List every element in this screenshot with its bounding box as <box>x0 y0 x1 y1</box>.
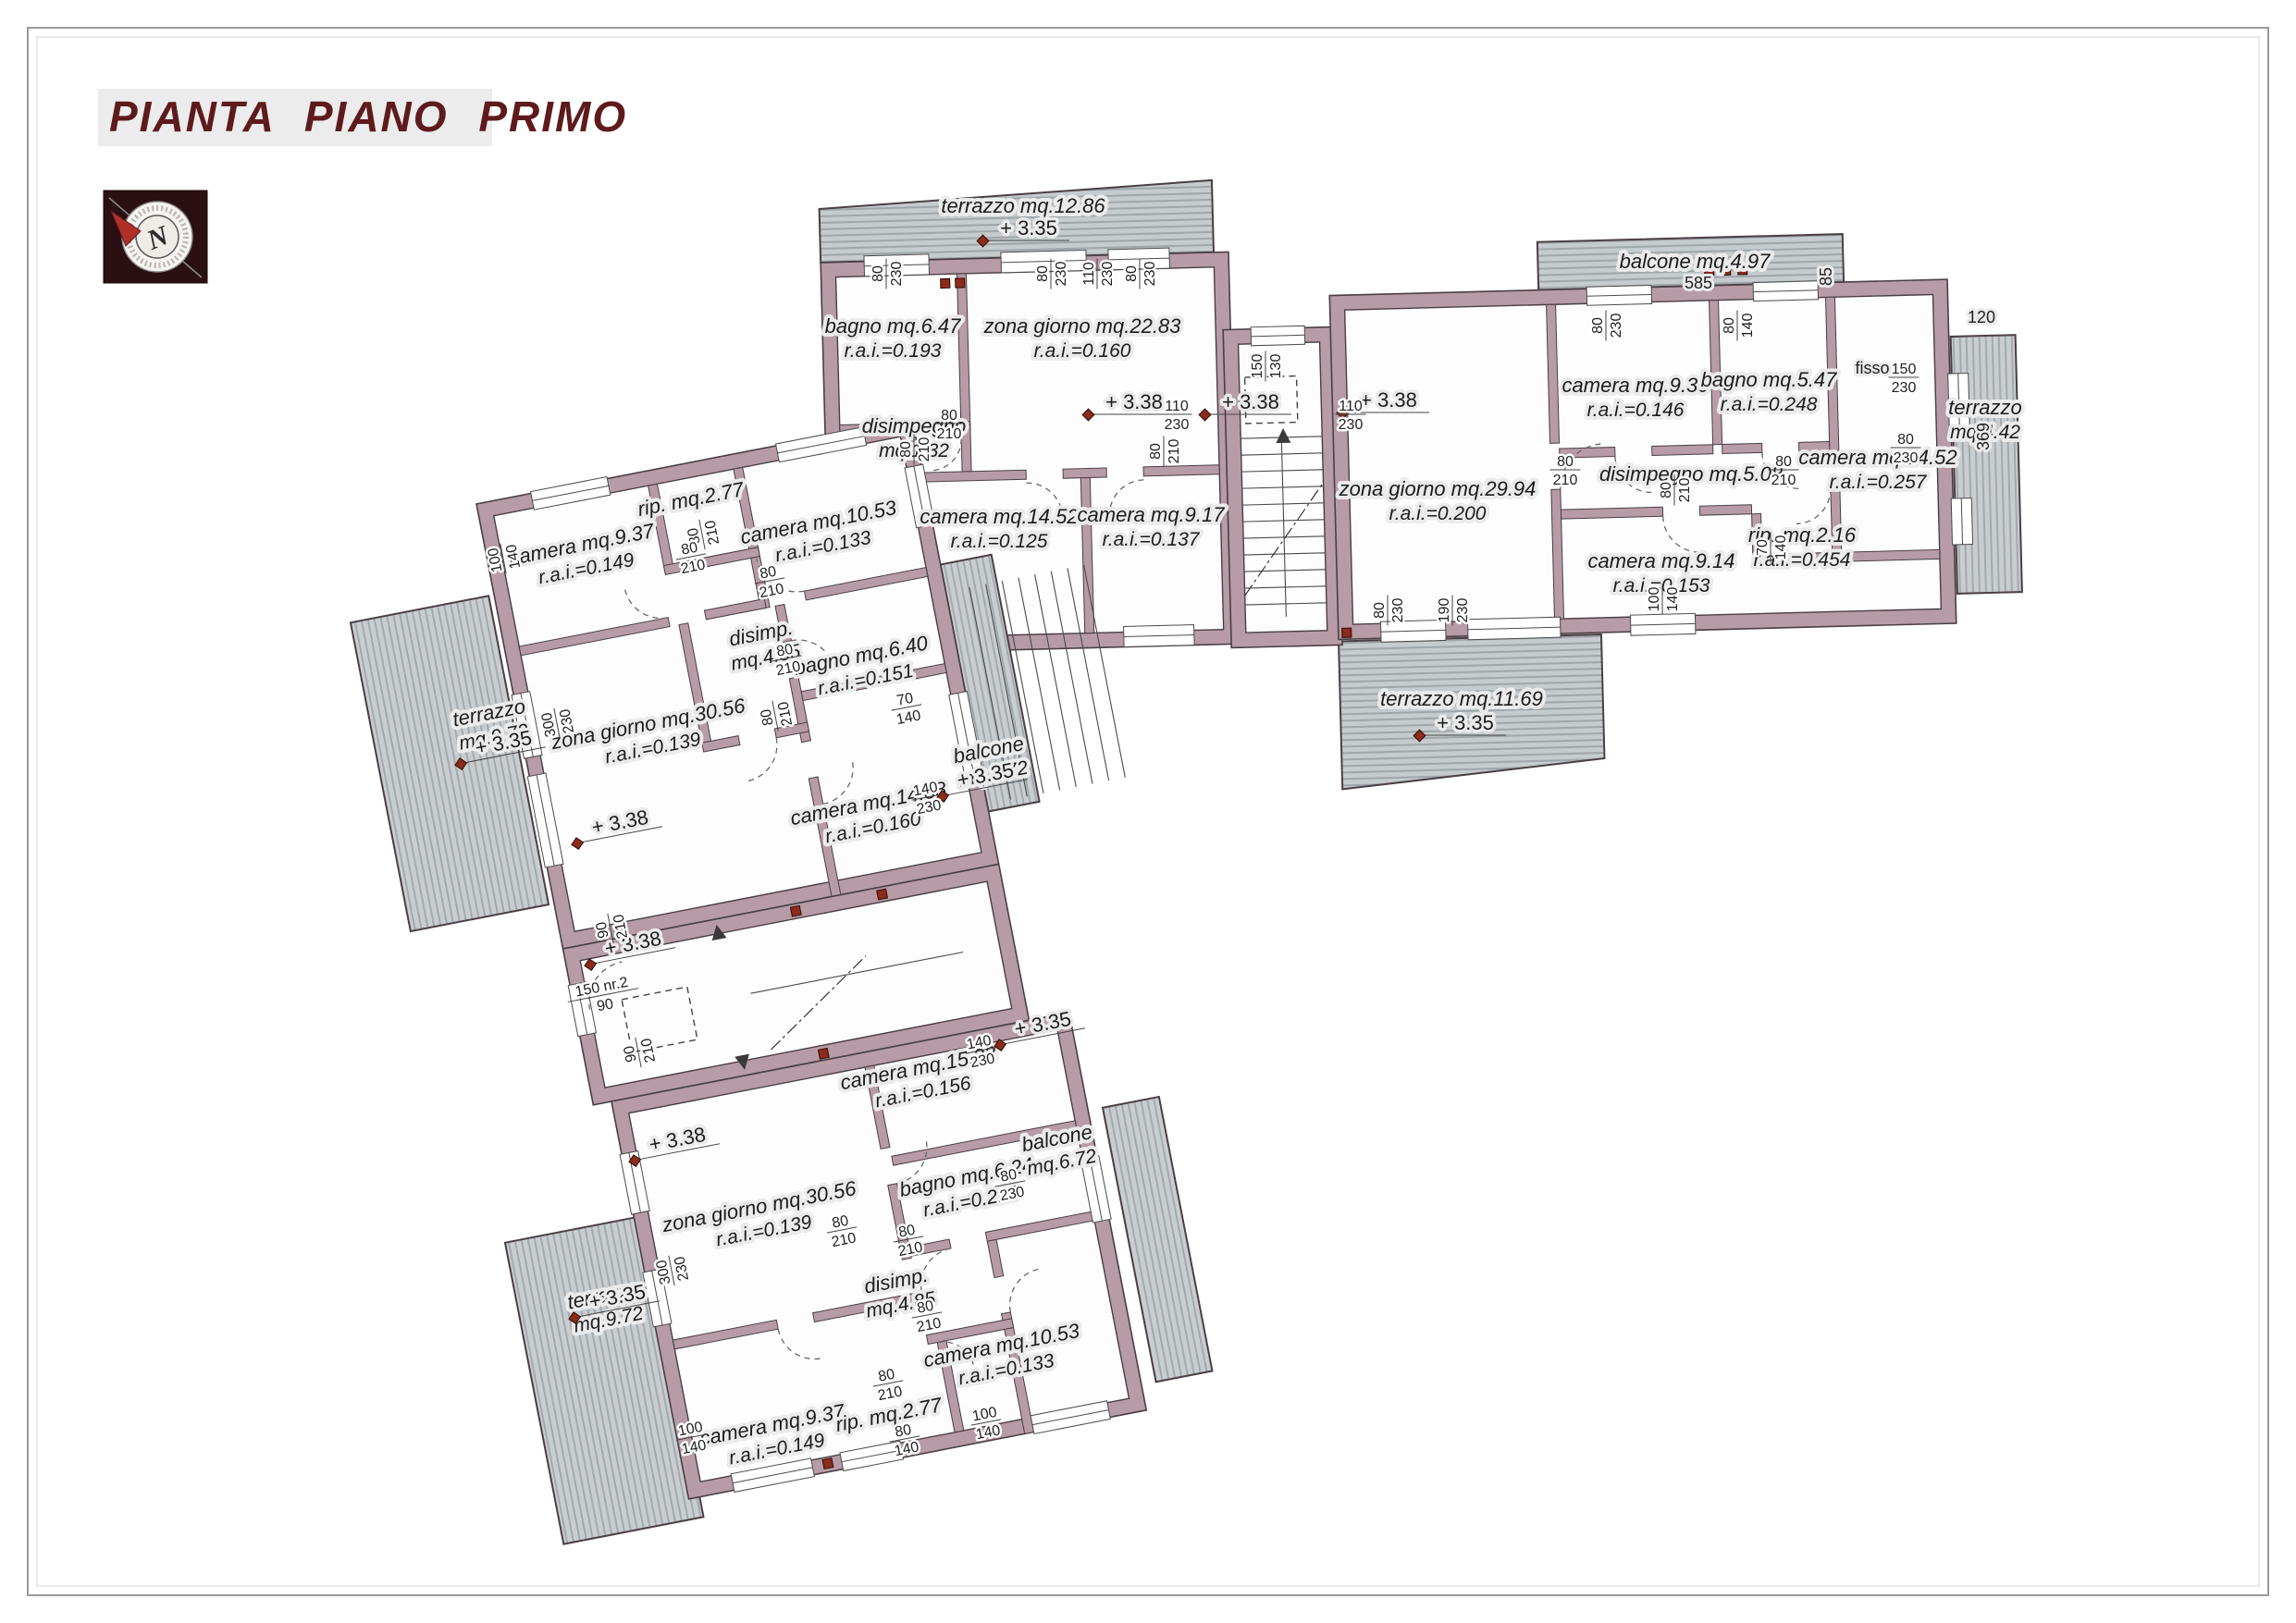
svg-text:585: 585 <box>1685 274 1712 292</box>
svg-text:terrazzo: terrazzo <box>1948 396 2021 419</box>
svg-text:80: 80 <box>1775 454 1792 470</box>
svg-text:70: 70 <box>1755 539 1771 556</box>
svg-text:80: 80 <box>898 441 914 458</box>
svg-text:140: 140 <box>1665 587 1681 612</box>
svg-text:bagno mq.5.47: bagno mq.5.47 <box>1701 368 1838 391</box>
note-label: 369 <box>1974 423 1993 450</box>
compass-icon: N <box>104 191 207 283</box>
svg-text:80: 80 <box>1148 443 1164 460</box>
note-label: fisso <box>1855 359 1889 377</box>
svg-text:r.a.i.=0.193: r.a.i.=0.193 <box>845 340 942 362</box>
svg-text:230: 230 <box>1609 314 1624 338</box>
note-label: 120 <box>1968 308 1995 326</box>
svg-text:120: 120 <box>1968 308 1995 326</box>
svg-text:230: 230 <box>1142 262 1158 287</box>
room-label: terrazzo mq.11.69 <box>1380 687 1543 710</box>
svg-text:80: 80 <box>1722 317 1737 334</box>
svg-text:230: 230 <box>1100 262 1116 287</box>
svg-text:210: 210 <box>1553 473 1578 488</box>
note-label: 85 <box>1817 267 1835 286</box>
svg-text:zona giorno mq.29.94: zona giorno mq.29.94 <box>1339 477 1537 500</box>
note-label: 585 <box>1685 274 1712 292</box>
svg-text:balcone mq.4.97: balcone mq.4.97 <box>1620 250 1771 273</box>
svg-text:r.a.i.=0.160: r.a.i.=0.160 <box>1034 340 1131 362</box>
svg-text:camera mq.14.52: camera mq.14.52 <box>1798 446 1957 469</box>
svg-text:210: 210 <box>937 426 962 442</box>
svg-text:110: 110 <box>1339 399 1363 414</box>
svg-text:+ 3.38: + 3.38 <box>1105 390 1163 413</box>
room-label: balcone mq.4.97 <box>1620 250 1771 273</box>
svg-text:190: 190 <box>1437 598 1452 623</box>
svg-text:85: 85 <box>1817 267 1835 286</box>
title-block: PIANTA PIANO PRIMO <box>98 89 627 146</box>
svg-text:r.a.i.=0.257: r.a.i.=0.257 <box>1830 472 1928 493</box>
svg-text:210: 210 <box>1167 439 1182 464</box>
svg-text:+ 3.35: + 3.35 <box>1437 711 1494 734</box>
svg-text:230: 230 <box>889 262 905 287</box>
svg-text:230: 230 <box>1165 417 1190 433</box>
svg-text:zona giorno mq.22.83: zona giorno mq.22.83 <box>983 314 1182 338</box>
room-label: terrazzo mq.12.86 <box>941 194 1105 217</box>
svg-text:r.a.i.=0.137: r.a.i.=0.137 <box>1103 529 1201 550</box>
svg-text:369: 369 <box>1974 423 1993 450</box>
svg-text:90: 90 <box>596 996 615 1014</box>
svg-text:80: 80 <box>1659 482 1674 498</box>
svg-text:r.a.i.=0.125: r.a.i.=0.125 <box>951 531 1048 552</box>
svg-text:fisso: fisso <box>1855 359 1889 377</box>
svg-text:80: 80 <box>1035 265 1051 282</box>
svg-text:140: 140 <box>1740 314 1756 338</box>
svg-text:terrazzo mq.12.86: terrazzo mq.12.86 <box>941 194 1105 217</box>
svg-text:camera mq.14.52: camera mq.14.52 <box>920 505 1078 528</box>
svg-text:r.a.i.=0.146: r.a.i.=0.146 <box>1587 400 1685 421</box>
svg-text:bagno mq.6.47: bagno mq.6.47 <box>825 314 962 338</box>
svg-text:80: 80 <box>941 408 957 424</box>
svg-text:80: 80 <box>870 265 886 282</box>
svg-text:80: 80 <box>1372 602 1388 619</box>
svg-text:r.a.i.=0.248: r.a.i.=0.248 <box>1721 394 1818 415</box>
svg-text:camera mq.9.14: camera mq.9.14 <box>1588 549 1735 572</box>
floor-plan-svg: PIANTA PIANO PRIMO N <box>0 0 2296 1623</box>
svg-text:+ 3.38: + 3.38 <box>1360 388 1417 412</box>
svg-text:150: 150 <box>1892 362 1917 377</box>
svg-text:80: 80 <box>1124 265 1140 282</box>
svg-text:r.a.i.=0.200: r.a.i.=0.200 <box>1389 503 1487 524</box>
svg-text:130: 130 <box>1268 354 1284 379</box>
svg-text:150: 150 <box>1250 354 1265 379</box>
svg-text:80: 80 <box>1897 432 1914 448</box>
svg-text:100: 100 <box>1647 587 1662 612</box>
svg-text:+ 3.35: + 3.35 <box>1000 216 1057 240</box>
page-title: PIANTA PIANO PRIMO <box>109 92 627 141</box>
svg-text:210: 210 <box>1771 473 1796 488</box>
svg-text:230: 230 <box>1390 598 1406 623</box>
svg-text:camera mq.9.17: camera mq.9.17 <box>1078 503 1226 526</box>
svg-text:110: 110 <box>1165 399 1189 414</box>
svg-text:80: 80 <box>1590 317 1606 334</box>
svg-text:110: 110 <box>1081 262 1097 286</box>
svg-text:230: 230 <box>1894 450 1919 466</box>
svg-text:230: 230 <box>1054 262 1069 287</box>
svg-text:terrazzo mq.11.69: terrazzo mq.11.69 <box>1380 687 1543 710</box>
svg-text:80: 80 <box>1557 454 1574 470</box>
svg-text:230: 230 <box>1892 380 1917 396</box>
svg-text:230: 230 <box>1339 417 1364 433</box>
svg-text:camera mq.9.30: camera mq.9.30 <box>1562 374 1710 397</box>
svg-text:210: 210 <box>1677 478 1693 503</box>
svg-text:230: 230 <box>1455 598 1471 623</box>
svg-text:140: 140 <box>893 1439 920 1459</box>
svg-text:+ 3.38: + 3.38 <box>1222 390 1279 413</box>
svg-text:210: 210 <box>917 437 932 462</box>
svg-text:140: 140 <box>974 1422 1002 1443</box>
drawing-sheet: PIANTA PIANO PRIMO N <box>0 0 2296 1623</box>
svg-text:140: 140 <box>1773 535 1789 560</box>
